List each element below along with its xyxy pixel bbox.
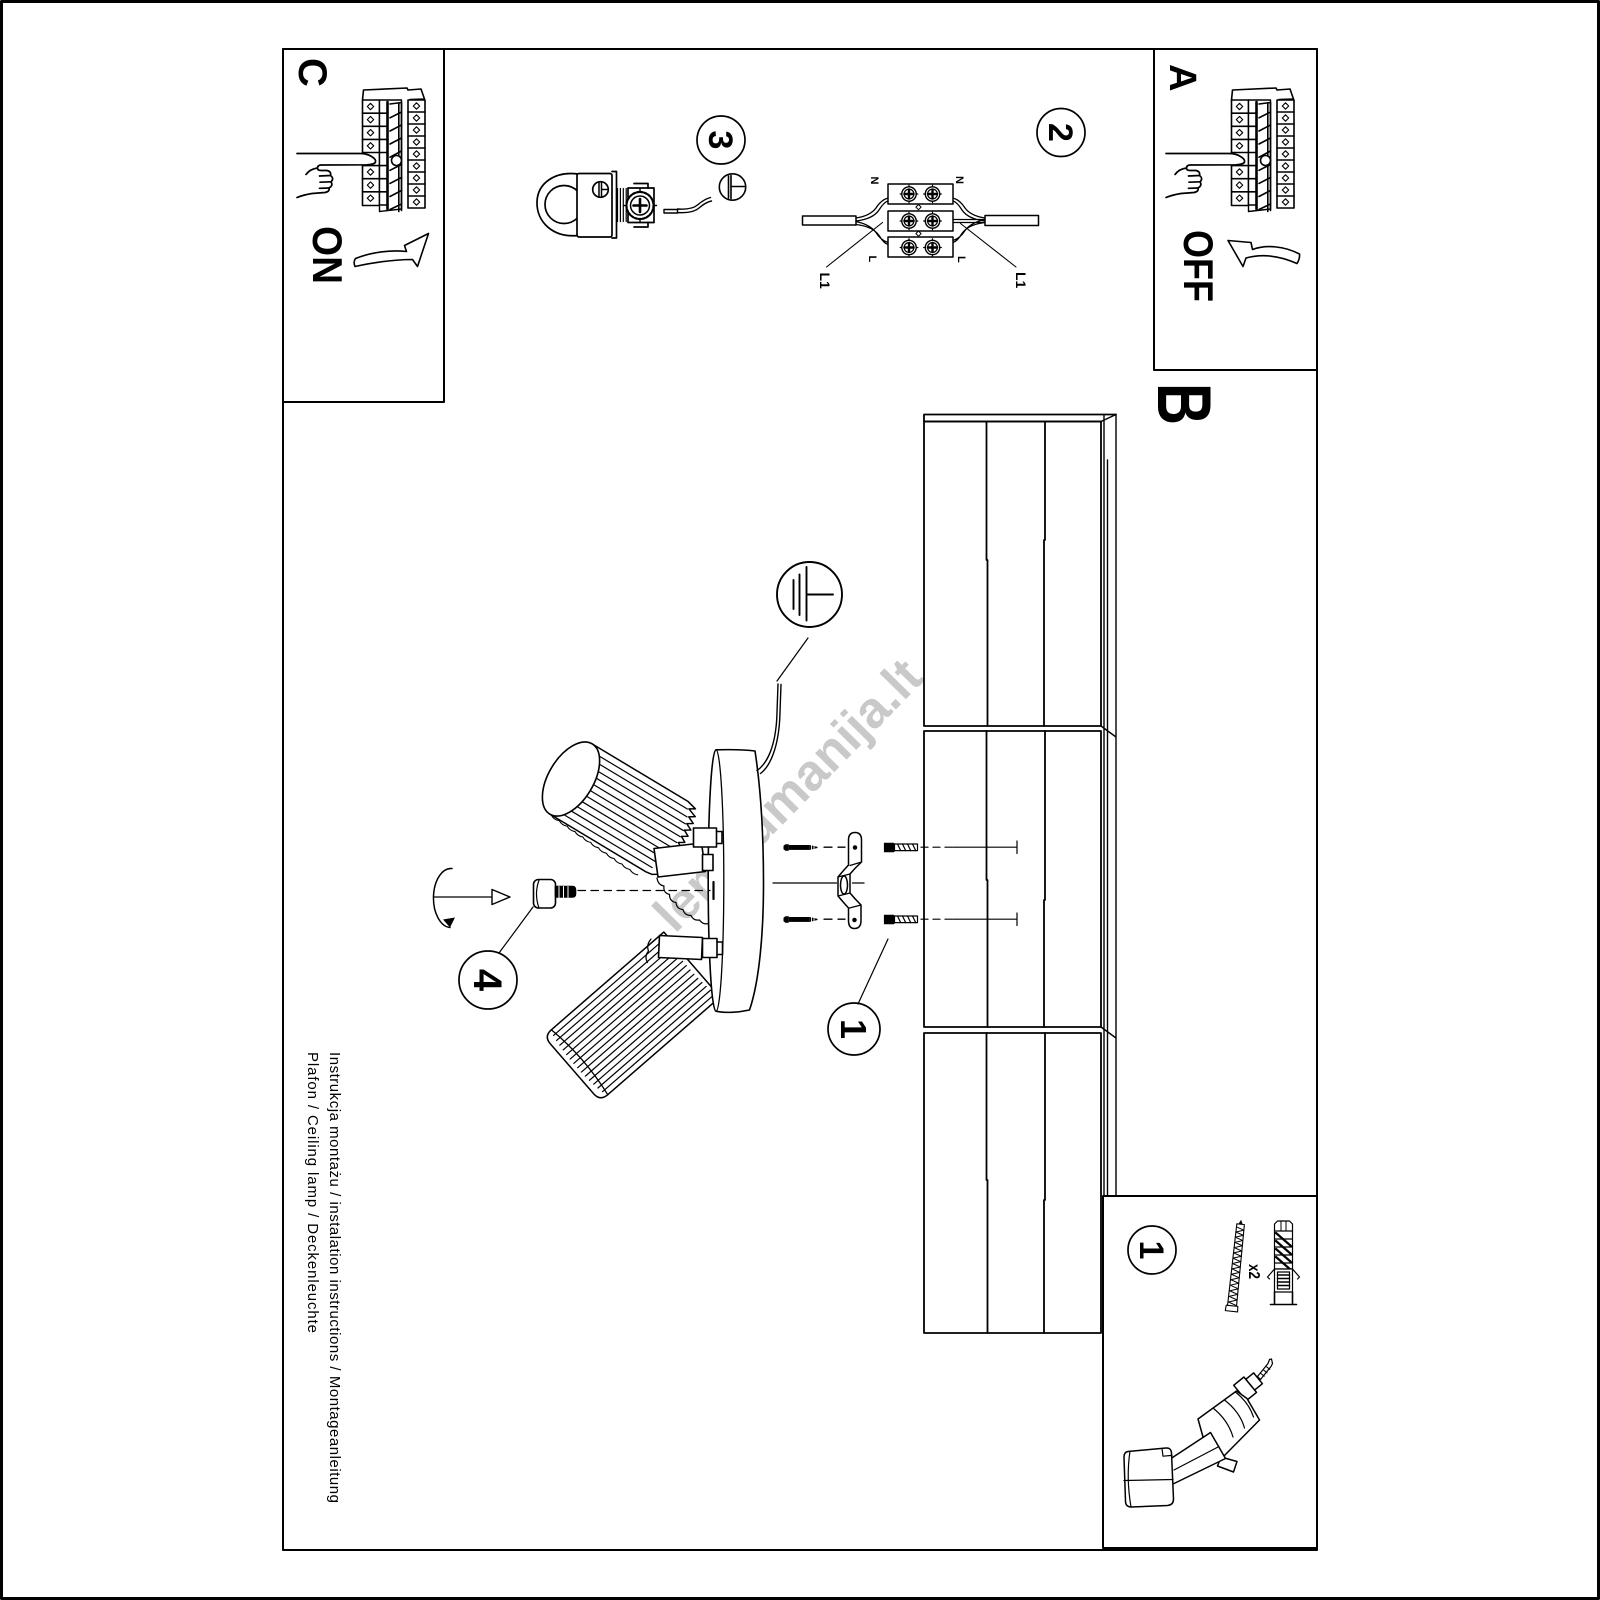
svg-text:1: 1	[1132, 1241, 1170, 1260]
svg-text:A: A	[1161, 64, 1203, 91]
svg-text:Instrukcja montażu / instalati: Instrukcja montażu / instalation instruc…	[326, 1052, 343, 1503]
svg-text:OFF: OFF	[1175, 230, 1222, 302]
svg-text:L: L	[866, 256, 878, 263]
svg-text:ON: ON	[304, 226, 351, 284]
svg-text:N: N	[953, 176, 965, 184]
svg-text:1: 1	[833, 1019, 874, 1039]
svg-text:3: 3	[701, 131, 739, 150]
svg-text:2: 2	[1041, 123, 1079, 142]
svg-text:x2: x2	[1245, 1264, 1262, 1279]
svg-text:C: C	[290, 58, 334, 87]
svg-text:L1: L1	[1013, 272, 1029, 289]
svg-text:4: 4	[465, 969, 509, 992]
svg-text:L: L	[955, 256, 967, 263]
svg-text:N: N	[868, 177, 880, 185]
svg-text:L1: L1	[817, 273, 833, 290]
svg-text:Plafon / Ceiling lamp / Decken: Plafon / Ceiling lamp / Deckenleuchte	[304, 1052, 321, 1333]
svg-text:B: B	[1141, 383, 1226, 425]
